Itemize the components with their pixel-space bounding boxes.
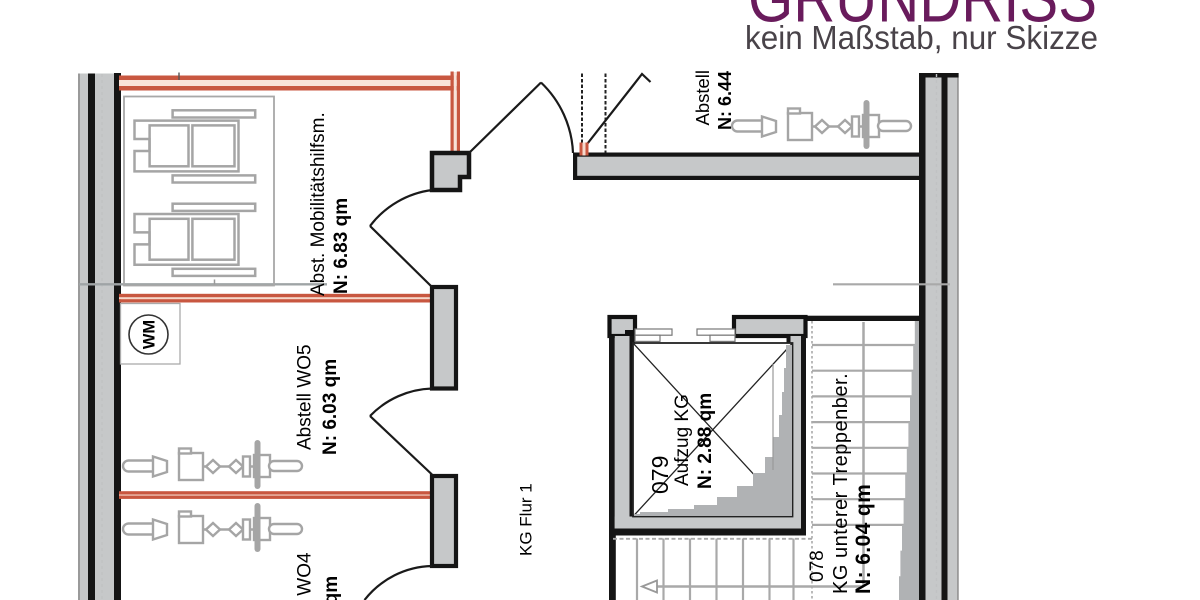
svg-text:Abstell WO5: Abstell WO5	[295, 344, 316, 450]
svg-text:078: 078	[807, 550, 828, 582]
svg-text:N: 6.44: N: 6.44	[715, 71, 735, 130]
svg-text:079: 079	[647, 456, 673, 494]
svg-text:kein Maßstab, nur Skizze: kein Maßstab, nur Skizze	[745, 19, 1098, 56]
svg-text:KG Flur 1: KG Flur 1	[517, 483, 536, 556]
svg-text:Abst. Mobilitätshilfsm.: Abst. Mobilitätshilfsm.	[308, 112, 329, 296]
svg-text:Abstell: Abstell	[692, 70, 713, 126]
svg-text:N: 6.83 qm: N: 6.83 qm	[331, 198, 352, 294]
svg-text:WM: WM	[141, 320, 159, 349]
svg-text:N: 6.03 qm: N: 6.03 qm	[320, 359, 341, 455]
svg-text:N: 6.04 qm: N: 6.04 qm	[852, 484, 875, 594]
svg-text:KG unterer Treppenber.: KG unterer Treppenber.	[830, 373, 852, 594]
svg-text:N: 2.88 qm: N: 2.88 qm	[695, 393, 716, 489]
svg-text:N: 6.04 qm: N: 6.04 qm	[321, 576, 342, 600]
svg-text:Aufzug KG: Aufzug KG	[672, 394, 693, 486]
svg-text:Abstell WO4: Abstell WO4	[295, 552, 316, 600]
